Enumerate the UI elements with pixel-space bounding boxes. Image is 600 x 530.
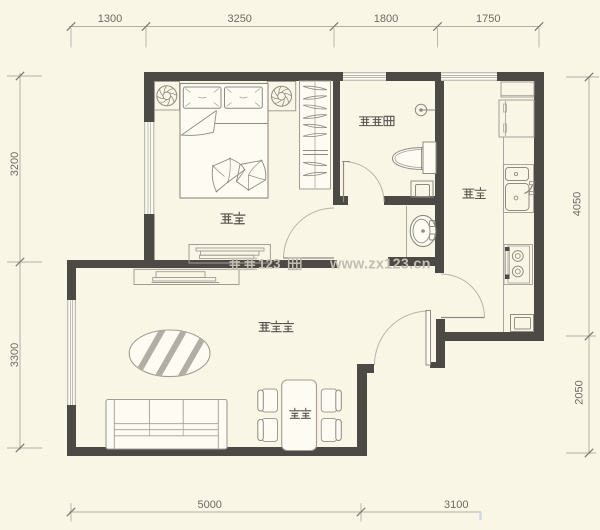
svg-text:3100: 3100 xyxy=(444,499,468,511)
svg-text:5000: 5000 xyxy=(197,499,221,511)
svg-text:3300: 3300 xyxy=(9,343,21,367)
svg-text:2050: 2050 xyxy=(574,380,586,404)
svg-text:123: 123 xyxy=(258,257,281,272)
svg-text:1800: 1800 xyxy=(374,13,398,25)
svg-text:3200: 3200 xyxy=(9,152,21,176)
svg-text:4050: 4050 xyxy=(572,192,584,216)
svg-text:3250: 3250 xyxy=(227,13,251,25)
svg-text:1750: 1750 xyxy=(476,13,500,25)
svg-text:www.zx123.cn: www.zx123.cn xyxy=(329,257,431,273)
svg-text:1300: 1300 xyxy=(98,13,122,25)
